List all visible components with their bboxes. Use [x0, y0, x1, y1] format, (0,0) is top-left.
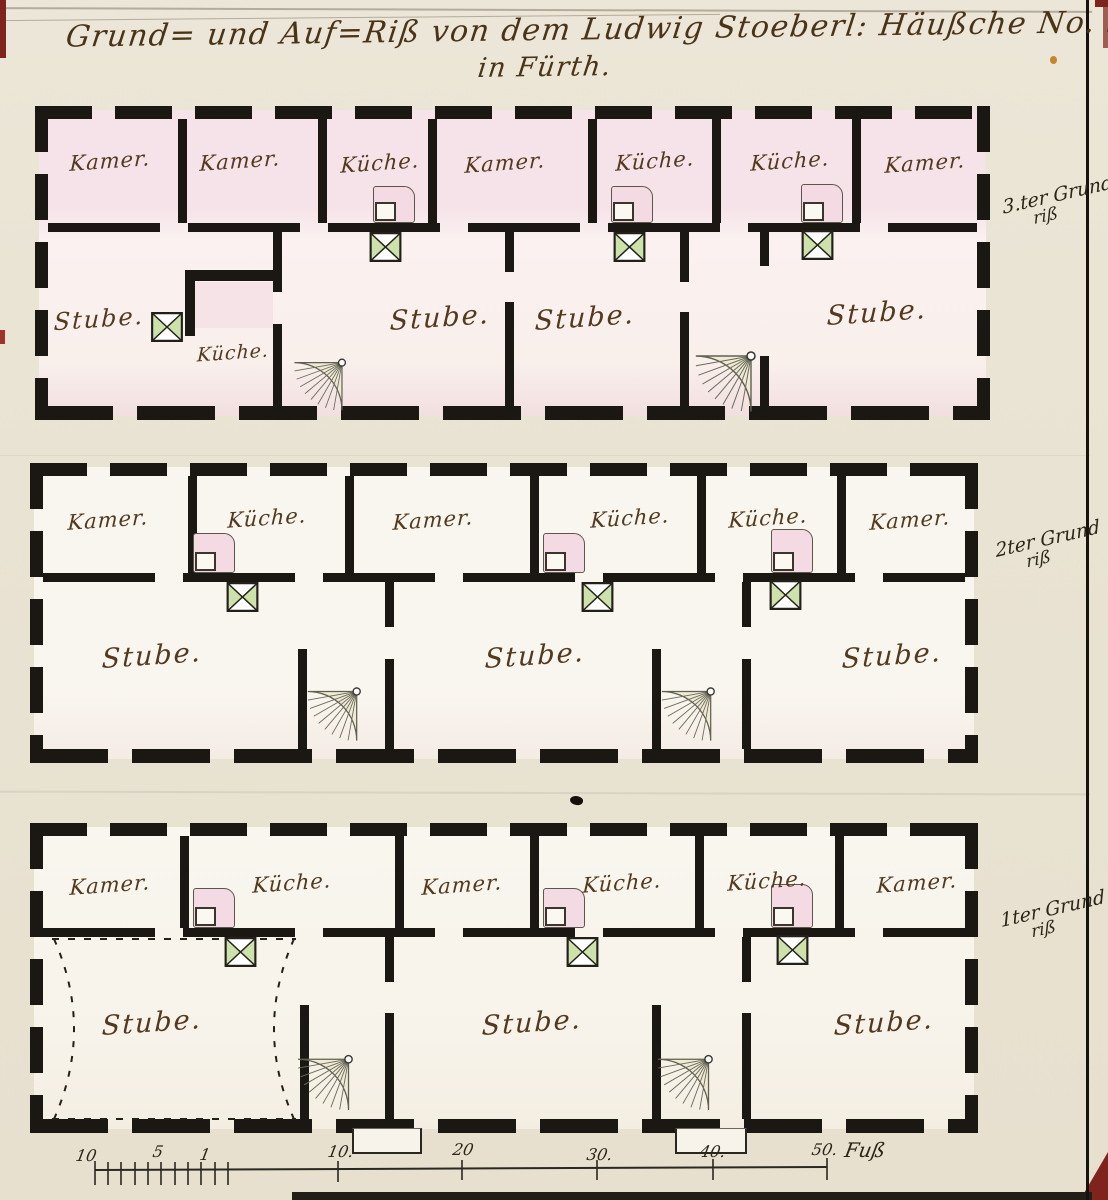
- wall-divider: [43, 573, 965, 582]
- crease-line: [0, 791, 1090, 796]
- chimney-icon: [193, 533, 235, 573]
- wall-segment: [428, 119, 437, 223]
- wall-segment: [185, 270, 280, 281]
- wall-segment: [505, 302, 514, 406]
- wall-top: [30, 823, 978, 836]
- scale-unit-label: Fuß: [843, 1138, 887, 1162]
- wall-segment: [697, 476, 706, 573]
- wall-top: [30, 463, 978, 476]
- floor-plan-3rd: Kamer. Kamer. Küche. Kamer. Küche. Küche…: [35, 106, 990, 420]
- wall-segment: [385, 659, 394, 749]
- wall-left: [35, 106, 48, 420]
- wall-right: [977, 106, 990, 420]
- scale-bar-line: [0, 1140, 1108, 1200]
- wall-bottom: [30, 749, 978, 763]
- wall-segment: [505, 232, 514, 272]
- wall-segment: [588, 119, 597, 223]
- wall-segment: [180, 836, 189, 928]
- chimney-icon: [611, 186, 653, 223]
- scale-label: 10.: [326, 1142, 355, 1161]
- wall-segment: [760, 356, 769, 406]
- wall-segment: [742, 659, 751, 749]
- red-edge: [0, 0, 6, 58]
- wall-bottom: [35, 406, 990, 420]
- floor-plan-2nd: Kamer. Küche. Kamer. Küche. Küche. Kamer…: [30, 463, 978, 763]
- chimney-icon: [373, 186, 415, 223]
- wall-segment: [273, 232, 282, 292]
- wall-segment: [385, 1013, 394, 1119]
- chimney-icon: [193, 888, 235, 928]
- wall-segment: [742, 582, 751, 627]
- stair-icon: [281, 354, 353, 416]
- stove-icon: [768, 580, 803, 610]
- stair-icon: [290, 1047, 354, 1119]
- stove-icon: [612, 232, 647, 262]
- wall-segment: [530, 476, 539, 573]
- wall-segment: [318, 119, 327, 223]
- stove-icon: [775, 935, 810, 965]
- stove-icon: [225, 582, 260, 612]
- floor-plan-1st: Kamer. Küche. Kamer. Küche. Küche. Kamer…: [30, 823, 978, 1133]
- wall-segment: [185, 281, 195, 336]
- wall-right: [965, 823, 978, 1133]
- floor-annotation-3rd: 3.ter Grund riß: [1002, 173, 1108, 235]
- wall-segment: [742, 1013, 751, 1119]
- crease-line: [0, 455, 1090, 456]
- stove-icon: [223, 937, 258, 967]
- stair-icon: [686, 346, 758, 418]
- scale-label: 20: [451, 1140, 475, 1159]
- chimney-icon: [543, 888, 585, 928]
- paper-speck: [1050, 56, 1057, 64]
- scale-label: 10: [74, 1146, 98, 1165]
- wall-segment: [530, 836, 539, 928]
- scale-bar: 10 5 1 10. 20 30. 40. 50. Fuß: [0, 1140, 1108, 1200]
- chimney-icon: [801, 184, 843, 223]
- stove-icon: [565, 937, 600, 967]
- stove-icon: [368, 232, 403, 262]
- chimney-icon: [543, 533, 585, 573]
- wall-segment: [835, 836, 844, 928]
- wall-segment: [695, 836, 704, 928]
- stove-icon: [580, 582, 615, 612]
- wall-segment: [742, 937, 751, 982]
- scale-label: 50.: [810, 1140, 839, 1159]
- stove-icon: [800, 230, 835, 260]
- stove-icon: [148, 312, 186, 342]
- wall-segment: [385, 582, 394, 627]
- floor-interior: [34, 467, 974, 759]
- ink-blot: [569, 794, 584, 807]
- wall-left: [30, 463, 43, 763]
- wall-segment: [345, 476, 354, 573]
- wall-top: [35, 106, 990, 119]
- wall-left: [30, 823, 43, 1133]
- stair-icon: [650, 1047, 714, 1119]
- scale-label: 30.: [585, 1145, 614, 1164]
- stair-icon: [300, 680, 362, 749]
- wall-segment: [852, 119, 861, 223]
- drawing-title-line2: in Fürth.: [476, 51, 614, 84]
- wall-segment: [178, 119, 187, 223]
- red-edge: [0, 330, 5, 344]
- wall-segment: [680, 232, 689, 282]
- small-kitchen-wash: [195, 282, 273, 328]
- chimney-icon: [771, 529, 813, 573]
- wall-divider: [48, 223, 977, 232]
- floor-annotation-1st: 1ter Grund riß: [1000, 888, 1107, 948]
- scale-label: 40.: [698, 1142, 727, 1161]
- wall-right: [965, 463, 978, 763]
- drawing-title-line1: Grund= und Auf=Riß von dem Ludwig Stoebe…: [64, 4, 1108, 54]
- wall-segment: [712, 119, 721, 223]
- wall-segment: [760, 232, 769, 266]
- wall-segment: [385, 937, 394, 982]
- stair-icon: [654, 680, 716, 749]
- wall-segment: [837, 476, 846, 573]
- wall-segment: [395, 836, 404, 928]
